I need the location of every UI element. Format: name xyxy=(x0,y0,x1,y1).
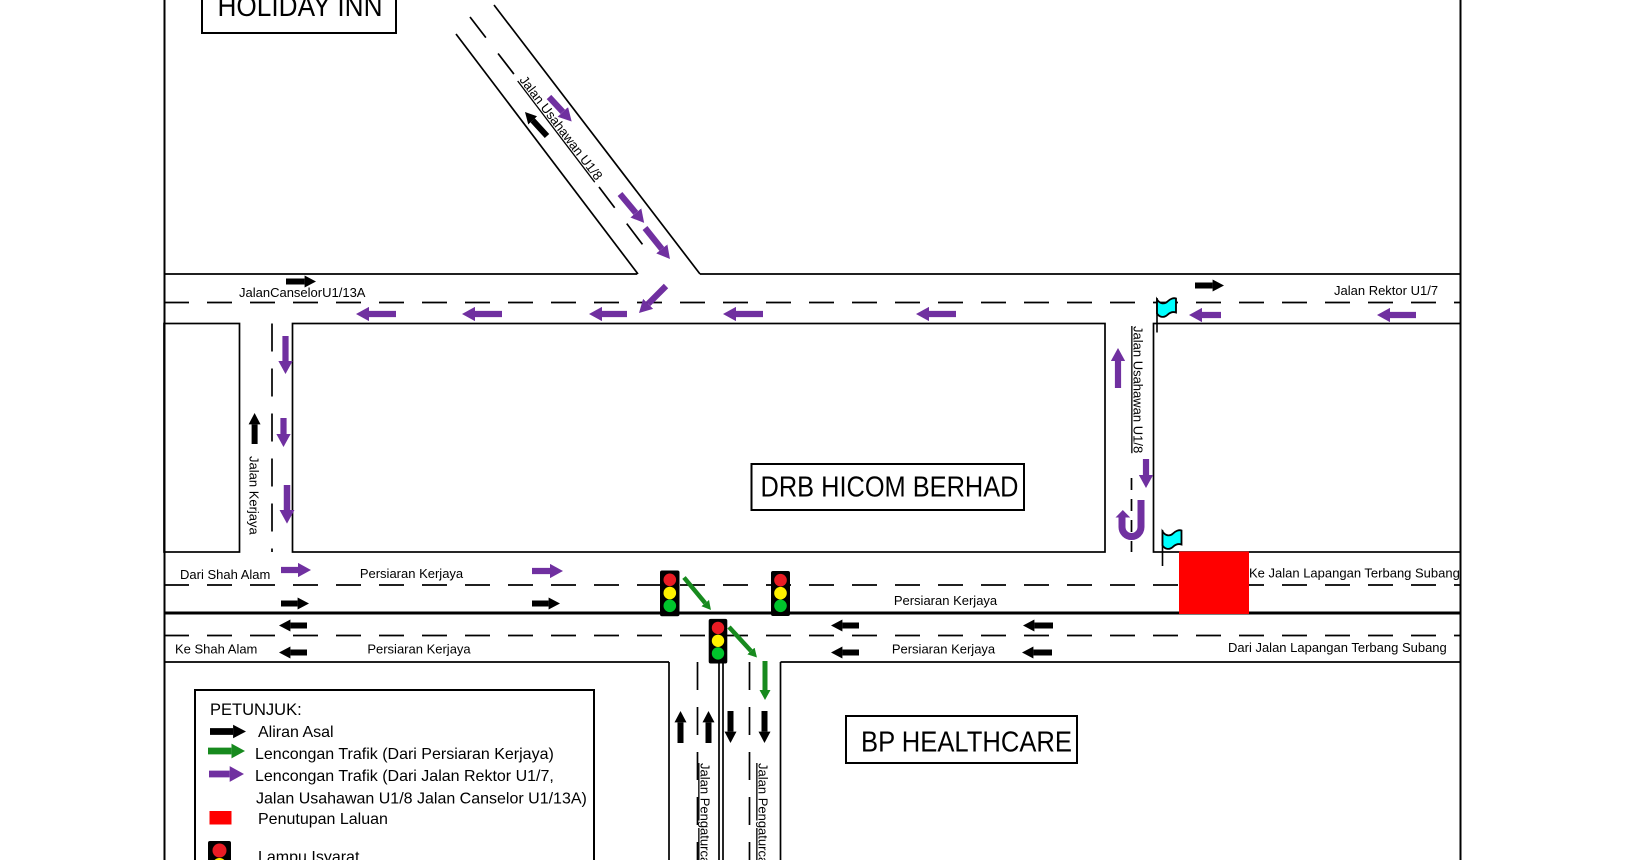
svg-text:Ke Shah Alam: Ke Shah Alam xyxy=(175,642,257,657)
svg-text:Jalan Pengaturcara: Jalan Pengaturcara xyxy=(698,763,713,860)
svg-text:Lencongan Trafik (Dari Jalan R: Lencongan Trafik (Dari Jalan Rektor U1/7… xyxy=(255,768,554,785)
svg-text:DRB HICOM BERHAD: DRB HICOM BERHAD xyxy=(761,472,1019,504)
svg-text:Persiaran Kerjaya: Persiaran Kerjaya xyxy=(894,593,998,608)
svg-text:PETUNJUK:: PETUNJUK: xyxy=(210,701,302,719)
svg-text:Jalan Rektor U1/7: Jalan Rektor U1/7 xyxy=(1334,283,1438,298)
svg-text:Lencongan Trafik (Dari Persiar: Lencongan Trafik (Dari Persiaran Kerjaya… xyxy=(255,746,554,763)
svg-text:Persiaran Kerjaya: Persiaran Kerjaya xyxy=(892,642,996,657)
svg-text:Penutupan Laluan: Penutupan Laluan xyxy=(258,811,388,828)
svg-text:JalanCanselorU1/13A: JalanCanselorU1/13A xyxy=(239,285,366,300)
svg-text:Jalan Kerjaya: Jalan Kerjaya xyxy=(247,456,262,536)
svg-text:Lampu Isyarat: Lampu Isyarat xyxy=(258,849,360,860)
svg-text:Jalan Usahawan U1/8: Jalan Usahawan U1/8 xyxy=(517,73,606,183)
svg-text:Jalan Usahawan U1/8 Jalan Cans: Jalan Usahawan U1/8 Jalan Canselor U1/13… xyxy=(256,791,587,808)
svg-text:BP HEALTHCARE: BP HEALTHCARE xyxy=(861,727,1072,759)
svg-text:Ke Jalan Lapangan Terbang Suba: Ke Jalan Lapangan Terbang Subang xyxy=(1249,566,1460,581)
svg-text:Aliran Asal: Aliran Asal xyxy=(258,724,334,741)
svg-text:Jalan Usahawan U1/8: Jalan Usahawan U1/8 xyxy=(1131,326,1146,453)
svg-text:Jalan Pengaturcara: Jalan Pengaturcara xyxy=(756,763,771,860)
svg-text:Persiaran Kerjaya: Persiaran Kerjaya xyxy=(360,566,464,581)
svg-text:Dari Shah Alam: Dari Shah Alam xyxy=(180,567,270,582)
svg-text:Persiaran Kerjaya: Persiaran Kerjaya xyxy=(367,642,471,657)
svg-text:HOLIDAY INN: HOLIDAY INN xyxy=(218,0,383,23)
svg-text:Dari Jalan Lapangan Terbang Su: Dari Jalan Lapangan Terbang Subang xyxy=(1228,640,1447,655)
